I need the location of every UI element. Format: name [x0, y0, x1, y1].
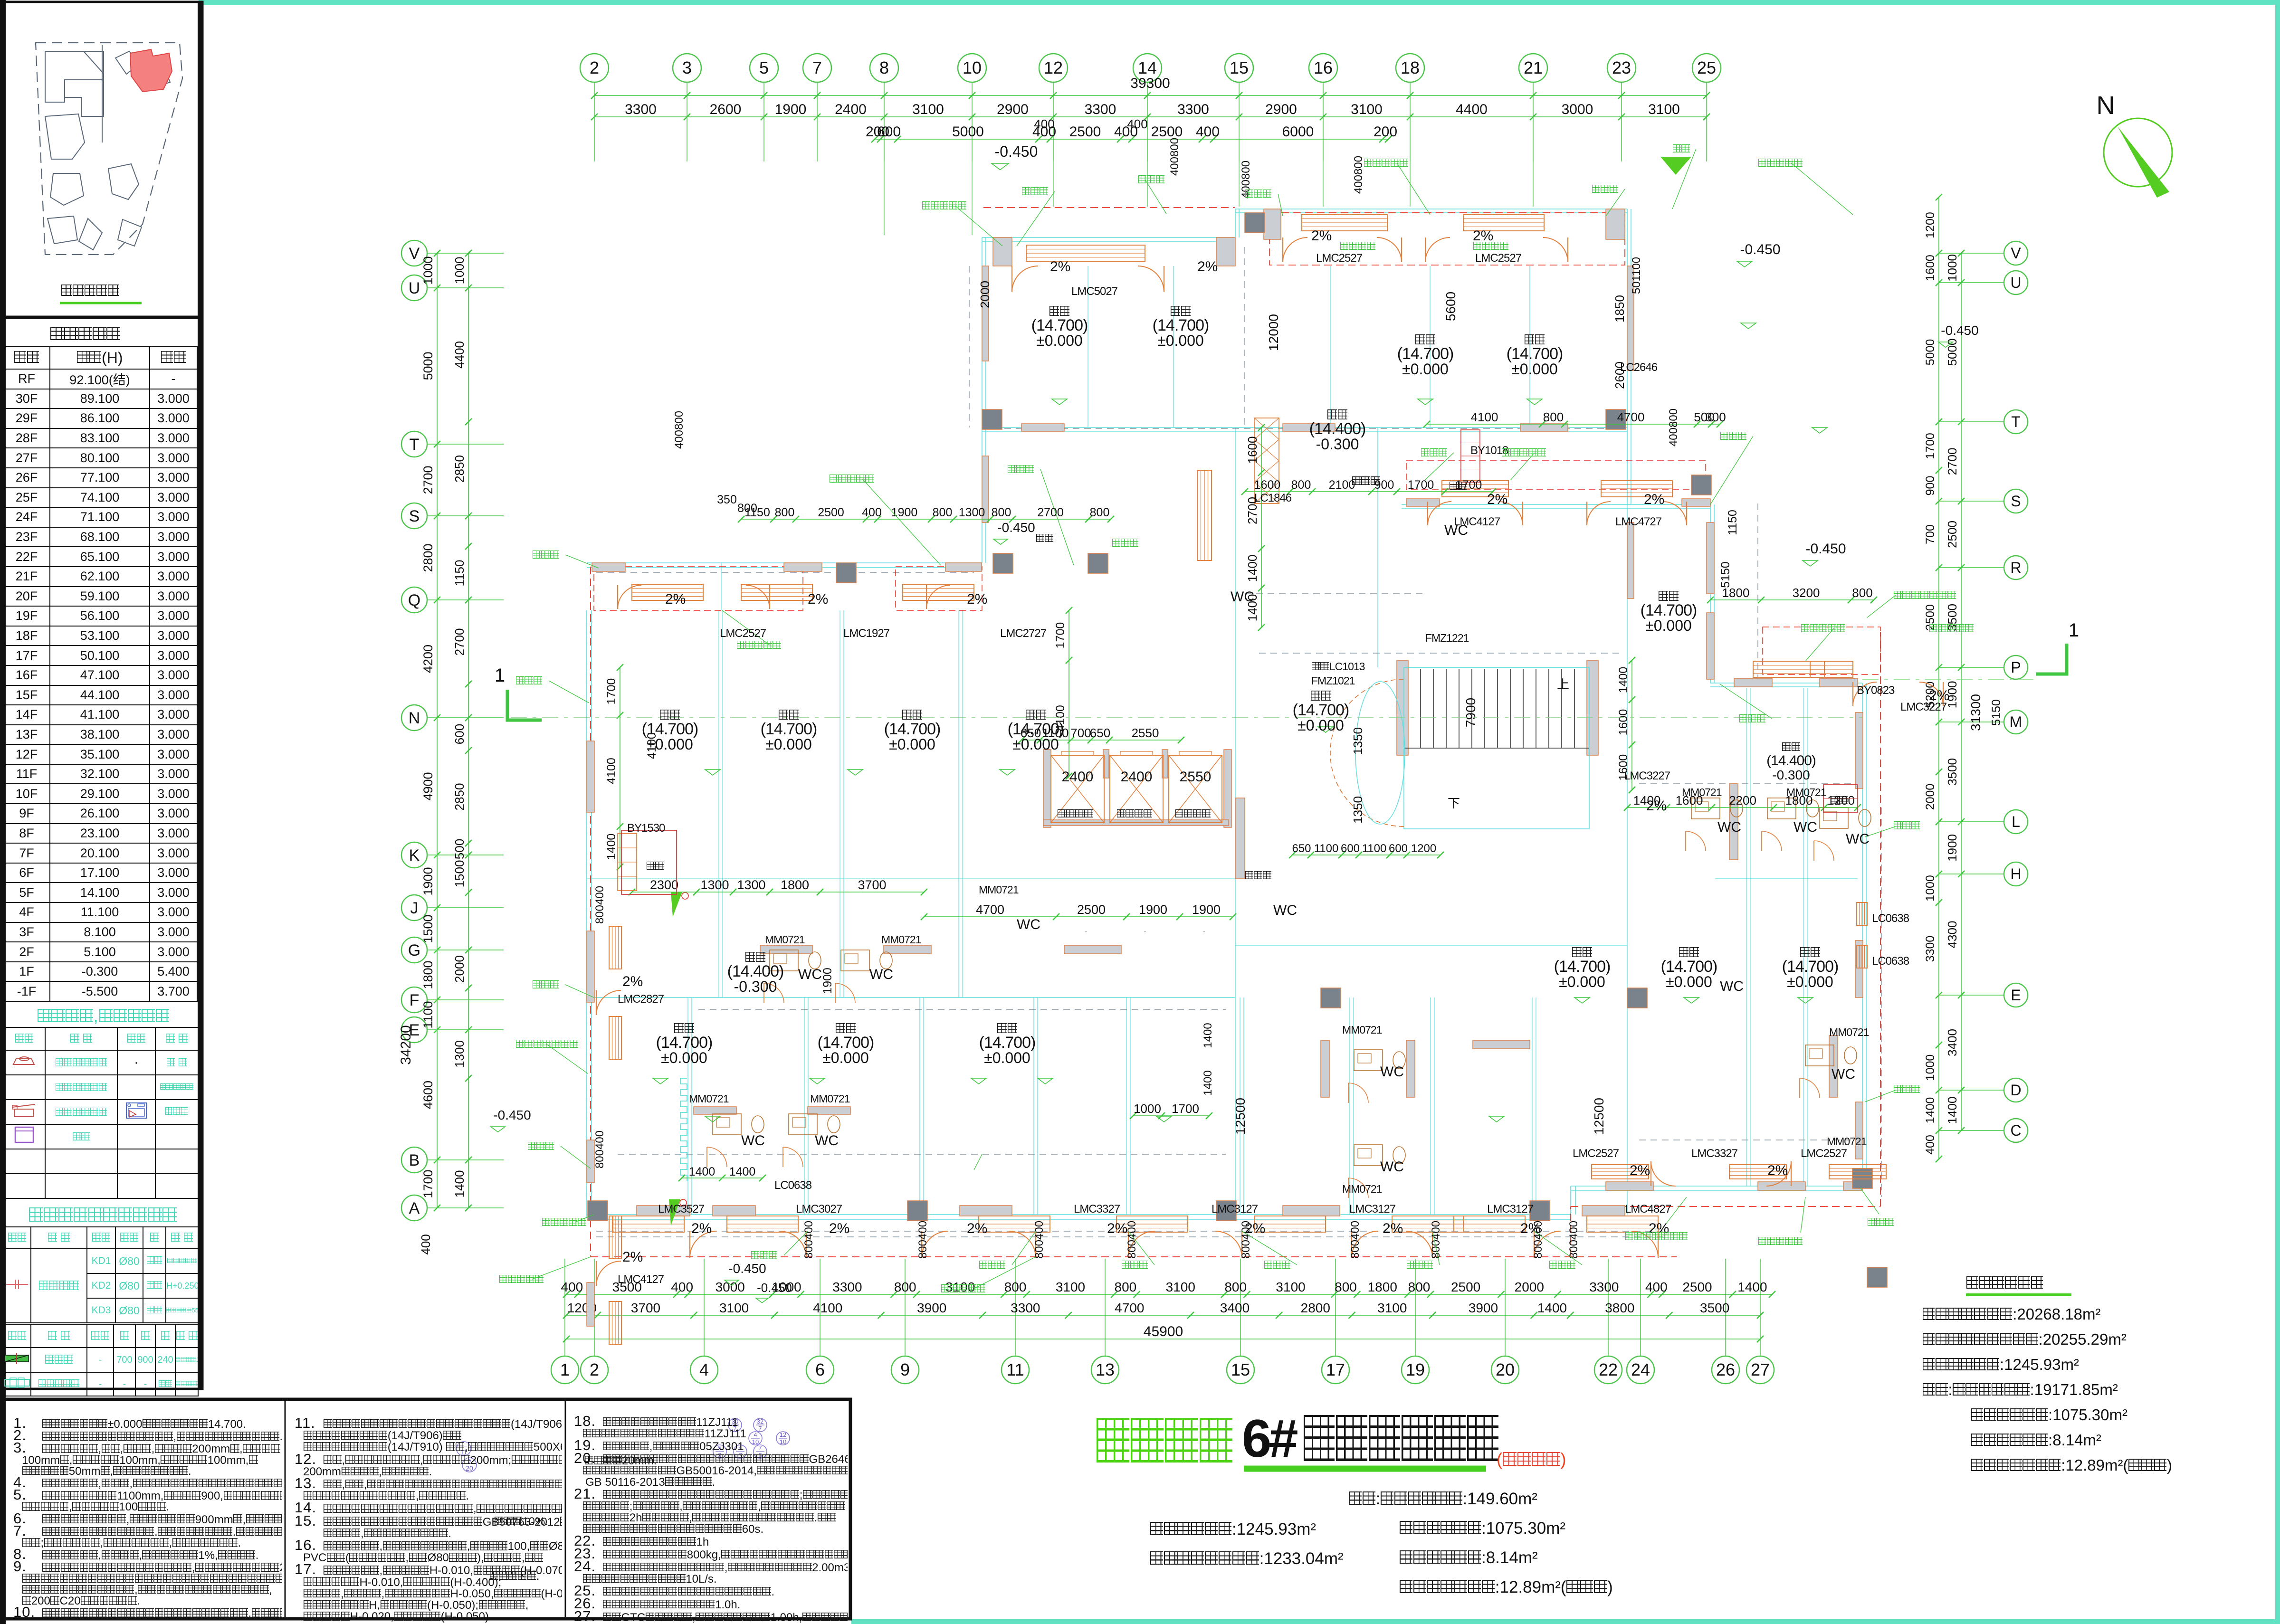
- svg-text:2000: 2000: [1515, 1280, 1544, 1294]
- svg-text:5000: 5000: [1924, 339, 1937, 366]
- svg-text:1000: 1000: [1134, 1102, 1161, 1116]
- svg-text:5600: 5600: [1443, 292, 1458, 321]
- svg-text:200: 200: [1374, 124, 1397, 140]
- svg-text:4100: 4100: [813, 1301, 842, 1315]
- svg-text:6000: 6000: [1282, 124, 1314, 140]
- svg-text:2000: 2000: [978, 281, 992, 308]
- svg-text:-0.450: -0.450: [997, 520, 1035, 535]
- svg-text:1800: 1800: [781, 878, 809, 892]
- svg-text:650: 650: [1090, 726, 1110, 740]
- svg-text:2700: 2700: [452, 628, 467, 656]
- svg-text:1400: 1400: [605, 834, 618, 860]
- svg-text:400800: 400800: [1352, 156, 1365, 194]
- svg-text:A: A: [409, 1199, 420, 1217]
- svg-text:1100: 1100: [421, 1001, 435, 1028]
- svg-text:2500: 2500: [1077, 902, 1106, 917]
- svg-text:3500: 3500: [1700, 1301, 1729, 1315]
- svg-text:3100: 3100: [1377, 1301, 1407, 1315]
- svg-text:800: 800: [1543, 410, 1564, 424]
- svg-text:-0.450: -0.450: [995, 143, 1038, 160]
- svg-text:350: 350: [717, 493, 737, 506]
- svg-text:3700: 3700: [631, 1301, 660, 1315]
- svg-text:5000: 5000: [421, 351, 435, 380]
- svg-text:C: C: [2010, 1122, 2021, 1139]
- svg-text:G: G: [408, 941, 420, 959]
- svg-text:11: 11: [1006, 1360, 1024, 1379]
- svg-text:1: 1: [495, 665, 505, 686]
- svg-text:S: S: [409, 507, 420, 525]
- svg-text:1700: 1700: [421, 1169, 435, 1198]
- svg-text:1400: 1400: [1617, 667, 1630, 693]
- svg-text:2850: 2850: [452, 455, 467, 483]
- svg-text:3100: 3100: [1276, 1280, 1305, 1294]
- svg-text:2700: 2700: [1945, 448, 1959, 475]
- svg-text:1850: 1850: [1612, 295, 1627, 323]
- svg-text:23: 23: [1612, 58, 1631, 77]
- svg-text:400: 400: [1034, 117, 1054, 131]
- svg-text:1900: 1900: [1945, 834, 1959, 862]
- svg-text:1800: 1800: [1368, 1280, 1397, 1294]
- svg-text:2500: 2500: [818, 506, 844, 519]
- svg-text:800: 800: [1224, 1280, 1247, 1294]
- svg-text:800400: 800400: [593, 1130, 606, 1168]
- svg-text:3200: 3200: [1793, 586, 1820, 600]
- svg-text:4400: 4400: [452, 341, 467, 369]
- svg-text:2700: 2700: [421, 465, 435, 494]
- svg-text:2100: 2100: [1329, 478, 1355, 492]
- svg-text:19: 19: [1406, 1360, 1425, 1379]
- svg-text:15: 15: [1230, 58, 1249, 77]
- svg-text:1900: 1900: [1192, 902, 1221, 917]
- svg-text:7: 7: [812, 58, 822, 77]
- svg-text:3500: 3500: [1945, 758, 1959, 786]
- svg-text:1500: 1500: [421, 914, 435, 943]
- svg-text:1150: 1150: [452, 560, 467, 587]
- svg-text:17: 17: [1326, 1360, 1345, 1379]
- svg-text:4700: 4700: [1617, 410, 1645, 424]
- svg-text:E: E: [2011, 987, 2021, 1004]
- svg-text:1700: 1700: [1924, 433, 1937, 459]
- svg-text:V: V: [2011, 245, 2021, 262]
- svg-text:45900: 45900: [1144, 1324, 1183, 1339]
- svg-text:1000: 1000: [1924, 1054, 1937, 1081]
- svg-text:2500: 2500: [1069, 124, 1101, 140]
- svg-text:J: J: [410, 899, 419, 917]
- svg-text:1400: 1400: [1202, 1023, 1214, 1048]
- svg-text:-0.450: -0.450: [493, 1108, 531, 1122]
- svg-text:上: 上: [1557, 677, 1569, 692]
- svg-text:1400: 1400: [1737, 1280, 1767, 1294]
- svg-text:1700: 1700: [1408, 478, 1434, 492]
- svg-text:Q: Q: [408, 591, 420, 609]
- svg-text:消防电梯: 消防电梯: [1085, 931, 1087, 932]
- svg-text:S: S: [2011, 493, 2021, 510]
- svg-text:3300: 3300: [1924, 936, 1937, 962]
- svg-text:12: 12: [1044, 58, 1063, 77]
- svg-text:3: 3: [682, 58, 692, 77]
- svg-text:4100: 4100: [605, 758, 618, 784]
- svg-text:2800: 2800: [421, 543, 435, 572]
- svg-text:800: 800: [1852, 586, 1872, 600]
- svg-text:T: T: [410, 436, 420, 454]
- svg-text:3100: 3100: [719, 1301, 749, 1315]
- svg-text:4300: 4300: [1945, 921, 1959, 949]
- svg-text:2850: 2850: [452, 783, 467, 811]
- svg-text:400: 400: [862, 506, 882, 519]
- svg-text:400800: 400800: [1667, 408, 1680, 446]
- svg-text:3100: 3100: [912, 102, 944, 117]
- svg-text:2500: 2500: [1451, 1280, 1480, 1294]
- svg-text:1700: 1700: [1172, 1102, 1199, 1116]
- svg-text:2900: 2900: [997, 102, 1029, 117]
- svg-text:12500: 12500: [1233, 1098, 1248, 1135]
- svg-text:800: 800: [1335, 1280, 1357, 1294]
- svg-text:800: 800: [992, 506, 1011, 519]
- svg-text:1: 1: [2069, 620, 2079, 641]
- svg-text:4200: 4200: [421, 645, 435, 673]
- svg-text:P: P: [2011, 659, 2021, 676]
- svg-text:400800: 400800: [673, 411, 686, 449]
- svg-text:800400: 800400: [593, 886, 606, 924]
- svg-text:-0.450: -0.450: [757, 1281, 792, 1295]
- svg-text:800: 800: [775, 506, 795, 519]
- svg-text:1000: 1000: [1945, 254, 1959, 282]
- svg-text:13: 13: [1096, 1360, 1115, 1379]
- svg-text:800: 800: [1291, 478, 1311, 492]
- svg-text:800: 800: [933, 506, 953, 519]
- svg-text:2800: 2800: [1301, 1301, 1330, 1315]
- svg-text:3100: 3100: [1351, 102, 1383, 117]
- svg-text:400: 400: [1196, 124, 1220, 140]
- svg-text:1300: 1300: [700, 878, 729, 892]
- svg-text:21: 21: [1524, 58, 1543, 77]
- svg-text:2000: 2000: [1924, 784, 1937, 810]
- svg-text:3300: 3300: [625, 102, 657, 117]
- svg-text:4100: 4100: [1471, 410, 1498, 424]
- svg-text:1200: 1200: [1411, 842, 1436, 855]
- svg-text:M: M: [2010, 713, 2022, 731]
- svg-text:400: 400: [671, 1280, 693, 1294]
- svg-text:1800: 1800: [421, 960, 435, 989]
- svg-text:下: 下: [1448, 796, 1460, 810]
- svg-text:2000: 2000: [452, 955, 467, 983]
- svg-text:400: 400: [419, 1234, 433, 1254]
- svg-text:800: 800: [737, 502, 757, 515]
- svg-text:3300: 3300: [832, 1280, 862, 1294]
- svg-text:3300: 3300: [1177, 102, 1209, 117]
- svg-text:1900: 1900: [775, 102, 807, 117]
- svg-text:1600: 1600: [1245, 437, 1259, 464]
- svg-text:3800: 3800: [1605, 1301, 1634, 1315]
- svg-text:15: 15: [1231, 1360, 1250, 1379]
- svg-text:2300: 2300: [650, 878, 678, 892]
- svg-text:5150: 5150: [1719, 561, 1732, 588]
- svg-text:1400: 1400: [689, 1165, 715, 1178]
- svg-text:800: 800: [1090, 506, 1110, 519]
- svg-text:600: 600: [1341, 842, 1360, 855]
- svg-text:K: K: [409, 846, 420, 864]
- svg-text:4700: 4700: [976, 902, 1004, 917]
- svg-text:1300: 1300: [959, 506, 985, 519]
- svg-text:3100: 3100: [1166, 1280, 1195, 1294]
- svg-text:1400: 1400: [1202, 1070, 1214, 1095]
- svg-text:800: 800: [1004, 1280, 1027, 1294]
- svg-text:1800: 1800: [1722, 586, 1750, 600]
- svg-text:1300: 1300: [737, 878, 765, 892]
- svg-text:1900: 1900: [421, 867, 435, 895]
- svg-text:2: 2: [590, 58, 599, 77]
- svg-text:N: N: [409, 709, 420, 727]
- svg-text:9: 9: [900, 1360, 910, 1379]
- svg-text:650: 650: [1292, 842, 1311, 855]
- svg-text:1600: 1600: [1254, 478, 1281, 492]
- svg-text:600: 600: [452, 724, 467, 744]
- svg-text:N: N: [2097, 91, 2115, 120]
- svg-text:2400: 2400: [835, 102, 867, 117]
- svg-text:5000: 5000: [952, 124, 984, 140]
- svg-text:3000: 3000: [1562, 102, 1593, 117]
- svg-text:8: 8: [879, 58, 889, 77]
- svg-text:4400: 4400: [1456, 102, 1488, 117]
- svg-text:1100: 1100: [1362, 842, 1387, 855]
- svg-text:V: V: [409, 245, 420, 263]
- svg-text:1900: 1900: [821, 968, 834, 994]
- svg-text:1350: 1350: [1351, 796, 1365, 824]
- svg-text:B: B: [409, 1151, 420, 1169]
- svg-text:26: 26: [1716, 1360, 1735, 1379]
- svg-text:1300: 1300: [452, 1040, 467, 1068]
- svg-text:2550: 2550: [1132, 726, 1159, 740]
- svg-text:1400: 1400: [1245, 555, 1259, 582]
- svg-text:1: 1: [560, 1360, 570, 1379]
- svg-text:400: 400: [1127, 117, 1147, 131]
- svg-text:3100: 3100: [1056, 1280, 1085, 1294]
- svg-text:3300: 3300: [1085, 102, 1116, 117]
- svg-text:4900: 4900: [421, 772, 435, 800]
- svg-text:1400: 1400: [452, 1170, 467, 1198]
- svg-text:消防电梯: 消防电梯: [1203, 931, 1205, 932]
- svg-text:消防电梯: 消防电梯: [1144, 931, 1146, 932]
- svg-text:H: H: [2010, 865, 2021, 883]
- svg-text:-0.450: -0.450: [1941, 323, 1978, 338]
- svg-text:39300: 39300: [1130, 76, 1170, 91]
- svg-text:700: 700: [1924, 524, 1937, 544]
- svg-text:34200: 34200: [398, 1025, 414, 1064]
- svg-text:2: 2: [590, 1360, 599, 1379]
- svg-text:1500: 1500: [452, 860, 467, 888]
- svg-text:5: 5: [759, 58, 769, 77]
- svg-text:1400: 1400: [1537, 1301, 1567, 1315]
- svg-text:F: F: [410, 991, 420, 1009]
- svg-text:D: D: [2010, 1082, 2021, 1099]
- svg-text:2500: 2500: [1945, 521, 1959, 548]
- svg-text:3400: 3400: [1945, 1029, 1959, 1056]
- svg-text:400: 400: [1924, 1135, 1937, 1155]
- svg-text:-0.450: -0.450: [1740, 242, 1780, 257]
- svg-text:1700: 1700: [1054, 622, 1067, 649]
- svg-text:2700: 2700: [1037, 506, 1064, 519]
- svg-text:3000: 3000: [715, 1280, 745, 1294]
- svg-text:800400: 800400: [1349, 1221, 1362, 1259]
- svg-text:2400: 2400: [1062, 769, 1094, 785]
- svg-text:5150: 5150: [1990, 699, 2003, 726]
- svg-text:1400: 1400: [729, 1165, 756, 1178]
- svg-text:16: 16: [1314, 58, 1333, 77]
- svg-text:800: 800: [1408, 1280, 1431, 1294]
- svg-text:800400: 800400: [1430, 1221, 1442, 1259]
- svg-text:400: 400: [561, 1280, 583, 1294]
- svg-text:2500: 2500: [1151, 124, 1183, 140]
- svg-text:-0.450: -0.450: [728, 1261, 766, 1276]
- svg-text:25: 25: [1697, 58, 1716, 77]
- svg-text:L: L: [2012, 813, 2020, 830]
- svg-text:1200: 1200: [1924, 212, 1937, 238]
- svg-text:1600: 1600: [1617, 709, 1630, 736]
- svg-text:4600: 4600: [421, 1081, 435, 1109]
- svg-text:3300: 3300: [1589, 1280, 1619, 1294]
- svg-text:2500: 2500: [1682, 1280, 1712, 1294]
- svg-text:12500: 12500: [1592, 1098, 1606, 1135]
- svg-text:3900: 3900: [917, 1301, 946, 1315]
- svg-text:3700: 3700: [858, 878, 886, 892]
- svg-text:3300: 3300: [1011, 1301, 1040, 1315]
- svg-text:600: 600: [877, 124, 901, 140]
- svg-text:12000: 12000: [1266, 314, 1281, 351]
- svg-text:2200: 2200: [1729, 793, 1756, 807]
- svg-text:-0.450: -0.450: [1805, 541, 1846, 557]
- svg-text:14: 14: [1138, 58, 1157, 77]
- svg-text:24: 24: [1631, 1360, 1650, 1379]
- svg-text:2550: 2550: [1180, 769, 1212, 785]
- svg-text:3400: 3400: [1220, 1301, 1250, 1315]
- svg-text:1150: 1150: [1726, 510, 1739, 535]
- svg-text:1000: 1000: [1924, 875, 1937, 902]
- svg-text:7900: 7900: [1463, 698, 1478, 727]
- svg-text:20: 20: [1496, 1360, 1515, 1379]
- svg-text:6: 6: [815, 1360, 825, 1379]
- svg-text:1100: 1100: [1314, 842, 1339, 855]
- svg-text:400: 400: [1645, 1280, 1668, 1294]
- svg-text:R: R: [2010, 559, 2021, 576]
- svg-text:1000: 1000: [421, 256, 435, 285]
- svg-text:1000: 1000: [452, 257, 467, 285]
- svg-text:31300: 31300: [1968, 694, 1983, 731]
- svg-text:800: 800: [1115, 1280, 1137, 1294]
- svg-text:800400: 800400: [1567, 1221, 1580, 1259]
- svg-text:500: 500: [452, 839, 467, 859]
- svg-text:1700: 1700: [605, 678, 618, 705]
- svg-text:T: T: [2011, 413, 2021, 430]
- svg-text:900: 900: [1924, 476, 1937, 496]
- svg-text:2400: 2400: [1121, 769, 1153, 785]
- svg-text:800400: 800400: [1033, 1221, 1046, 1259]
- svg-text:4: 4: [699, 1360, 709, 1379]
- svg-text:3900: 3900: [1469, 1301, 1498, 1315]
- svg-text:300: 300: [1705, 410, 1726, 424]
- svg-text:400800: 400800: [1168, 138, 1181, 176]
- svg-text:3100: 3100: [1648, 102, 1680, 117]
- svg-text:10: 10: [963, 58, 982, 77]
- svg-text:1600: 1600: [1924, 255, 1937, 281]
- svg-text:501100: 501100: [1630, 257, 1643, 294]
- svg-text:800400: 800400: [916, 1221, 929, 1259]
- svg-text:1400: 1400: [1924, 1097, 1937, 1124]
- svg-text:U: U: [409, 279, 420, 297]
- svg-text:1400: 1400: [1945, 1097, 1959, 1124]
- svg-text:22: 22: [1599, 1360, 1618, 1379]
- svg-text:27: 27: [1751, 1360, 1770, 1379]
- svg-text:800: 800: [894, 1280, 916, 1294]
- svg-text:4700: 4700: [1115, 1301, 1144, 1315]
- svg-text:800400: 800400: [802, 1221, 815, 1259]
- svg-text:2600: 2600: [710, 102, 742, 117]
- svg-text:1900: 1900: [1139, 902, 1167, 917]
- svg-text:U: U: [2010, 274, 2021, 291]
- svg-text:600: 600: [1389, 842, 1408, 855]
- svg-text:18: 18: [1401, 58, 1420, 77]
- svg-text:1900: 1900: [891, 506, 918, 519]
- svg-text:2900: 2900: [1265, 102, 1297, 117]
